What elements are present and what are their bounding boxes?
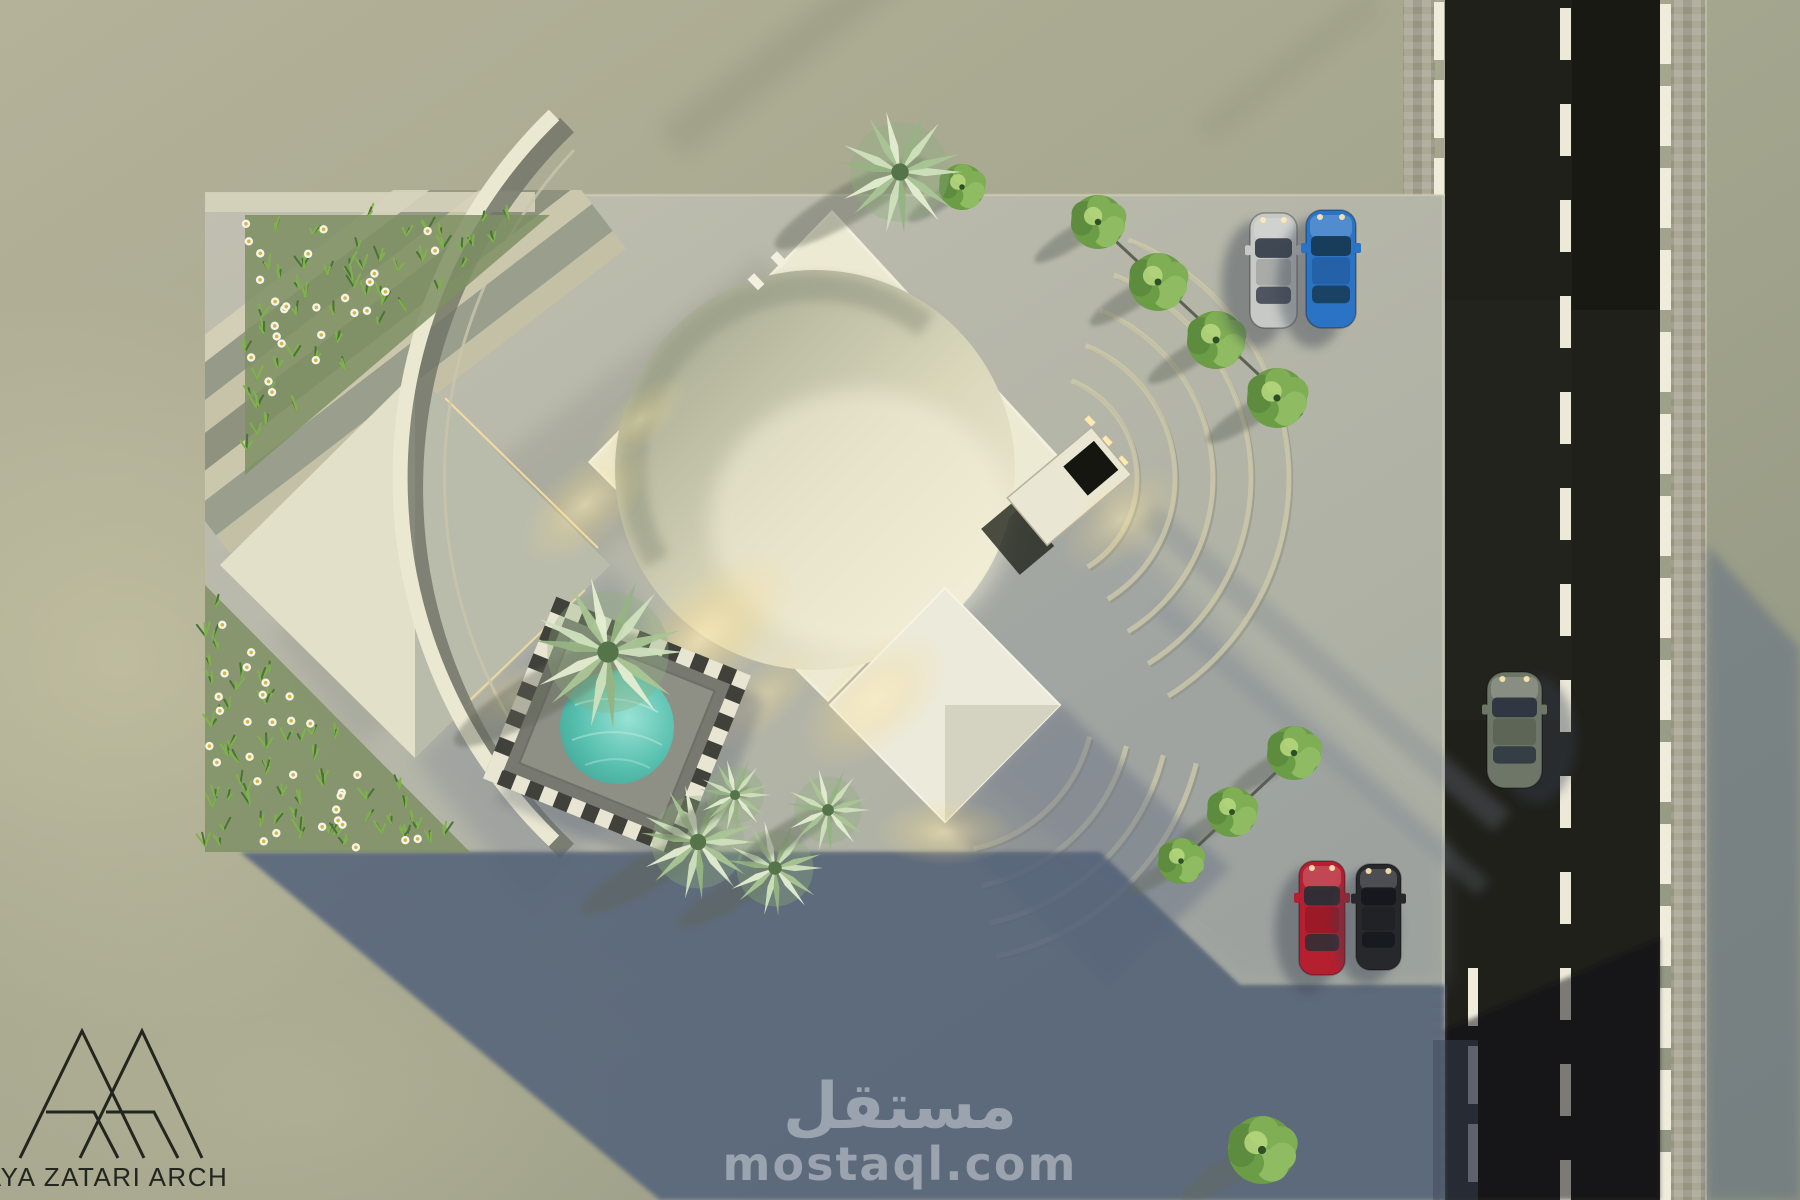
shadow-right-of-road: [1707, 545, 1800, 1200]
daisy-flower: [271, 297, 279, 305]
curb-dash-left-top: [1434, 80, 1444, 138]
car-hood-highlight: [1303, 866, 1341, 889]
curb-dash-right: [1660, 742, 1671, 802]
palm-crown-center: [891, 163, 908, 180]
daisy-flower: [287, 717, 295, 725]
center-lane-dash: [1560, 296, 1571, 348]
rear-glass: [1312, 286, 1350, 304]
daisy-flower: [350, 309, 358, 317]
side-mirror: [1400, 894, 1406, 904]
car-roof: [1493, 718, 1536, 745]
tree-foliage: [1299, 747, 1321, 769]
daisy-flower: [317, 331, 325, 339]
rear-glass: [1305, 934, 1339, 951]
daisy-flower: [370, 269, 378, 277]
headlight: [1385, 868, 1391, 874]
side-mirror: [1245, 245, 1251, 255]
daisy-flower: [268, 388, 276, 396]
curb-dash-right: [1660, 168, 1671, 228]
windshield: [1304, 886, 1340, 905]
palm-crown-center: [730, 790, 740, 800]
daisy-flower: [285, 692, 293, 700]
tree-trunk-top: [1178, 858, 1184, 864]
daisy-flower: [213, 758, 221, 766]
logo-text: AYA ZATARI ARCH: [0, 1162, 228, 1192]
curb-dash-right: [1660, 824, 1671, 884]
daisy-flower: [256, 249, 264, 257]
daisy-flower: [220, 669, 228, 677]
watermark-latin: mostaql.com: [723, 1137, 1078, 1191]
daisy-flower: [277, 339, 285, 347]
shadow-on-curb: [1433, 1040, 1478, 1200]
daisy-flower: [253, 777, 261, 785]
tree-trunk-top: [1291, 750, 1297, 756]
daisy-flower: [245, 753, 253, 761]
center-lane-dash: [1560, 392, 1571, 444]
center-lane-dash: [1560, 8, 1571, 60]
daisy-flower: [423, 227, 431, 235]
watermark-arabic: مستقل: [783, 1070, 1017, 1144]
tree-foliage: [1237, 807, 1257, 827]
daisy-flower: [334, 816, 342, 824]
rear-glass: [1493, 746, 1536, 763]
curb-dash-right: [1660, 906, 1671, 966]
center-lane-dash: [1560, 488, 1571, 540]
daisy-flower: [341, 294, 349, 302]
daisy-flower: [268, 718, 276, 726]
daisy-flower: [259, 691, 267, 699]
daisy-flower: [214, 692, 222, 700]
palm-crown-center: [822, 804, 834, 816]
side-mirror: [1541, 704, 1547, 714]
daisy-flower: [271, 322, 279, 330]
headlight: [1309, 865, 1315, 871]
asphalt-patch: [1572, 0, 1660, 310]
daisy-flower: [312, 356, 320, 364]
headlight: [1339, 214, 1345, 220]
daisy-flower: [306, 719, 314, 727]
daisy-flower: [319, 225, 327, 233]
side-mirror: [1294, 893, 1300, 903]
olive-car-on-road: [1482, 672, 1576, 804]
car-roof: [1362, 906, 1395, 930]
palm-crown-center: [690, 834, 706, 850]
daisy-flower: [282, 302, 290, 310]
side-mirror: [1351, 894, 1357, 904]
curb-dash-right: [1660, 332, 1671, 392]
daisy-flower: [264, 377, 272, 385]
daisy-flower: [256, 276, 264, 284]
center-lane-dash: [1560, 200, 1571, 252]
side-mirror: [1301, 243, 1307, 253]
daisy-flower: [318, 823, 326, 831]
daisy-flower: [332, 805, 340, 813]
palm-crown-center: [768, 861, 781, 874]
site-plan-render: مستقل mostaql.com AYA ZATARI ARCH: [0, 0, 1800, 1200]
curb-dash-right: [1660, 414, 1671, 474]
tree-trunk-top: [1258, 1146, 1266, 1154]
daisy-flower: [216, 707, 224, 715]
daisy-flower: [242, 220, 250, 228]
headlight: [1260, 217, 1266, 223]
tree-foliage: [1164, 276, 1187, 299]
daisy-flower: [289, 771, 297, 779]
daisy-flower: [243, 663, 251, 671]
headlight: [1317, 214, 1323, 220]
headlight: [1499, 676, 1505, 682]
car-hood-highlight: [1491, 677, 1538, 700]
daisy-flower: [304, 250, 312, 258]
sidewalk-stone-right: [1671, 0, 1706, 1200]
curb-dash-right: [1660, 86, 1671, 146]
curb-dash-right: [1660, 578, 1671, 638]
tree-foliage: [1186, 856, 1204, 874]
daisy-flower: [413, 835, 421, 843]
curb-dash-right: [1660, 660, 1671, 720]
daisy-flower: [218, 621, 226, 629]
asphalt-patch: [1445, 300, 1572, 720]
curb-dash-right: [1660, 988, 1671, 1048]
headlight: [1329, 865, 1335, 871]
daisy-flower: [245, 237, 253, 245]
tree-trunk-top: [1155, 279, 1162, 286]
daisy-flower: [272, 332, 280, 340]
daisy-flower: [312, 303, 320, 311]
tree-trunk-top: [1273, 394, 1280, 401]
daisy-flower: [205, 742, 213, 750]
center-lane-dash: [1560, 872, 1571, 924]
daisy-flower: [272, 829, 280, 837]
car-hood-highlight: [1254, 218, 1293, 241]
daisy-flower: [353, 771, 361, 779]
daisy-flower: [381, 287, 389, 295]
headlight: [1366, 868, 1372, 874]
tree-foliage: [1283, 391, 1307, 415]
sidewalk-stone-top-left: [1403, 0, 1435, 214]
side-mirror: [1482, 704, 1488, 714]
curb-dash-left-top: [1434, 2, 1444, 60]
daisy-flower: [366, 278, 374, 286]
rear-glass: [1362, 932, 1395, 948]
curb-dash-right: [1660, 496, 1671, 556]
side-mirror: [1355, 243, 1361, 253]
windshield: [1311, 236, 1351, 256]
architectural-render-canvas: مستقل mostaql.com AYA ZATARI ARCH: [0, 0, 1800, 1200]
light-glow: [875, 798, 1015, 866]
windshield: [1361, 887, 1396, 905]
daisy-flower: [336, 792, 344, 800]
car-roof: [1305, 907, 1339, 933]
tree-foliage: [967, 182, 985, 200]
center-lane-dash: [1560, 584, 1571, 636]
tree-trunk-top: [1095, 219, 1101, 225]
tree-trunk-top: [959, 184, 965, 190]
daisy-flower: [243, 718, 251, 726]
palm-crown-center: [597, 641, 618, 662]
car-hood-highlight: [1310, 215, 1352, 239]
tree-foliage: [1103, 216, 1125, 238]
car-hood-highlight: [1360, 869, 1397, 890]
center-lane-dash: [1560, 104, 1571, 156]
curb-dash-right: [1660, 250, 1671, 310]
daisy-flower: [261, 678, 269, 686]
daisy-flower: [352, 843, 360, 851]
car-roof: [1312, 257, 1350, 284]
tree-trunk-top: [1213, 337, 1220, 344]
windshield: [1492, 698, 1537, 718]
daisy-flower: [401, 836, 409, 844]
daisy-flower: [363, 307, 371, 315]
tree-trunk-top: [1229, 809, 1235, 815]
curb-dash-right: [1660, 4, 1671, 64]
daisy-flower: [260, 837, 268, 845]
headlight: [1524, 676, 1530, 682]
daisy-flower: [431, 247, 439, 255]
curb-dash-right: [1660, 1152, 1671, 1200]
daisy-flower: [247, 648, 255, 656]
headlight: [1281, 217, 1287, 223]
grass-tuft: [303, 256, 305, 269]
tree-foliage: [1269, 1143, 1296, 1170]
curb-dash-right: [1660, 1070, 1671, 1130]
daisy-flower: [247, 353, 255, 361]
